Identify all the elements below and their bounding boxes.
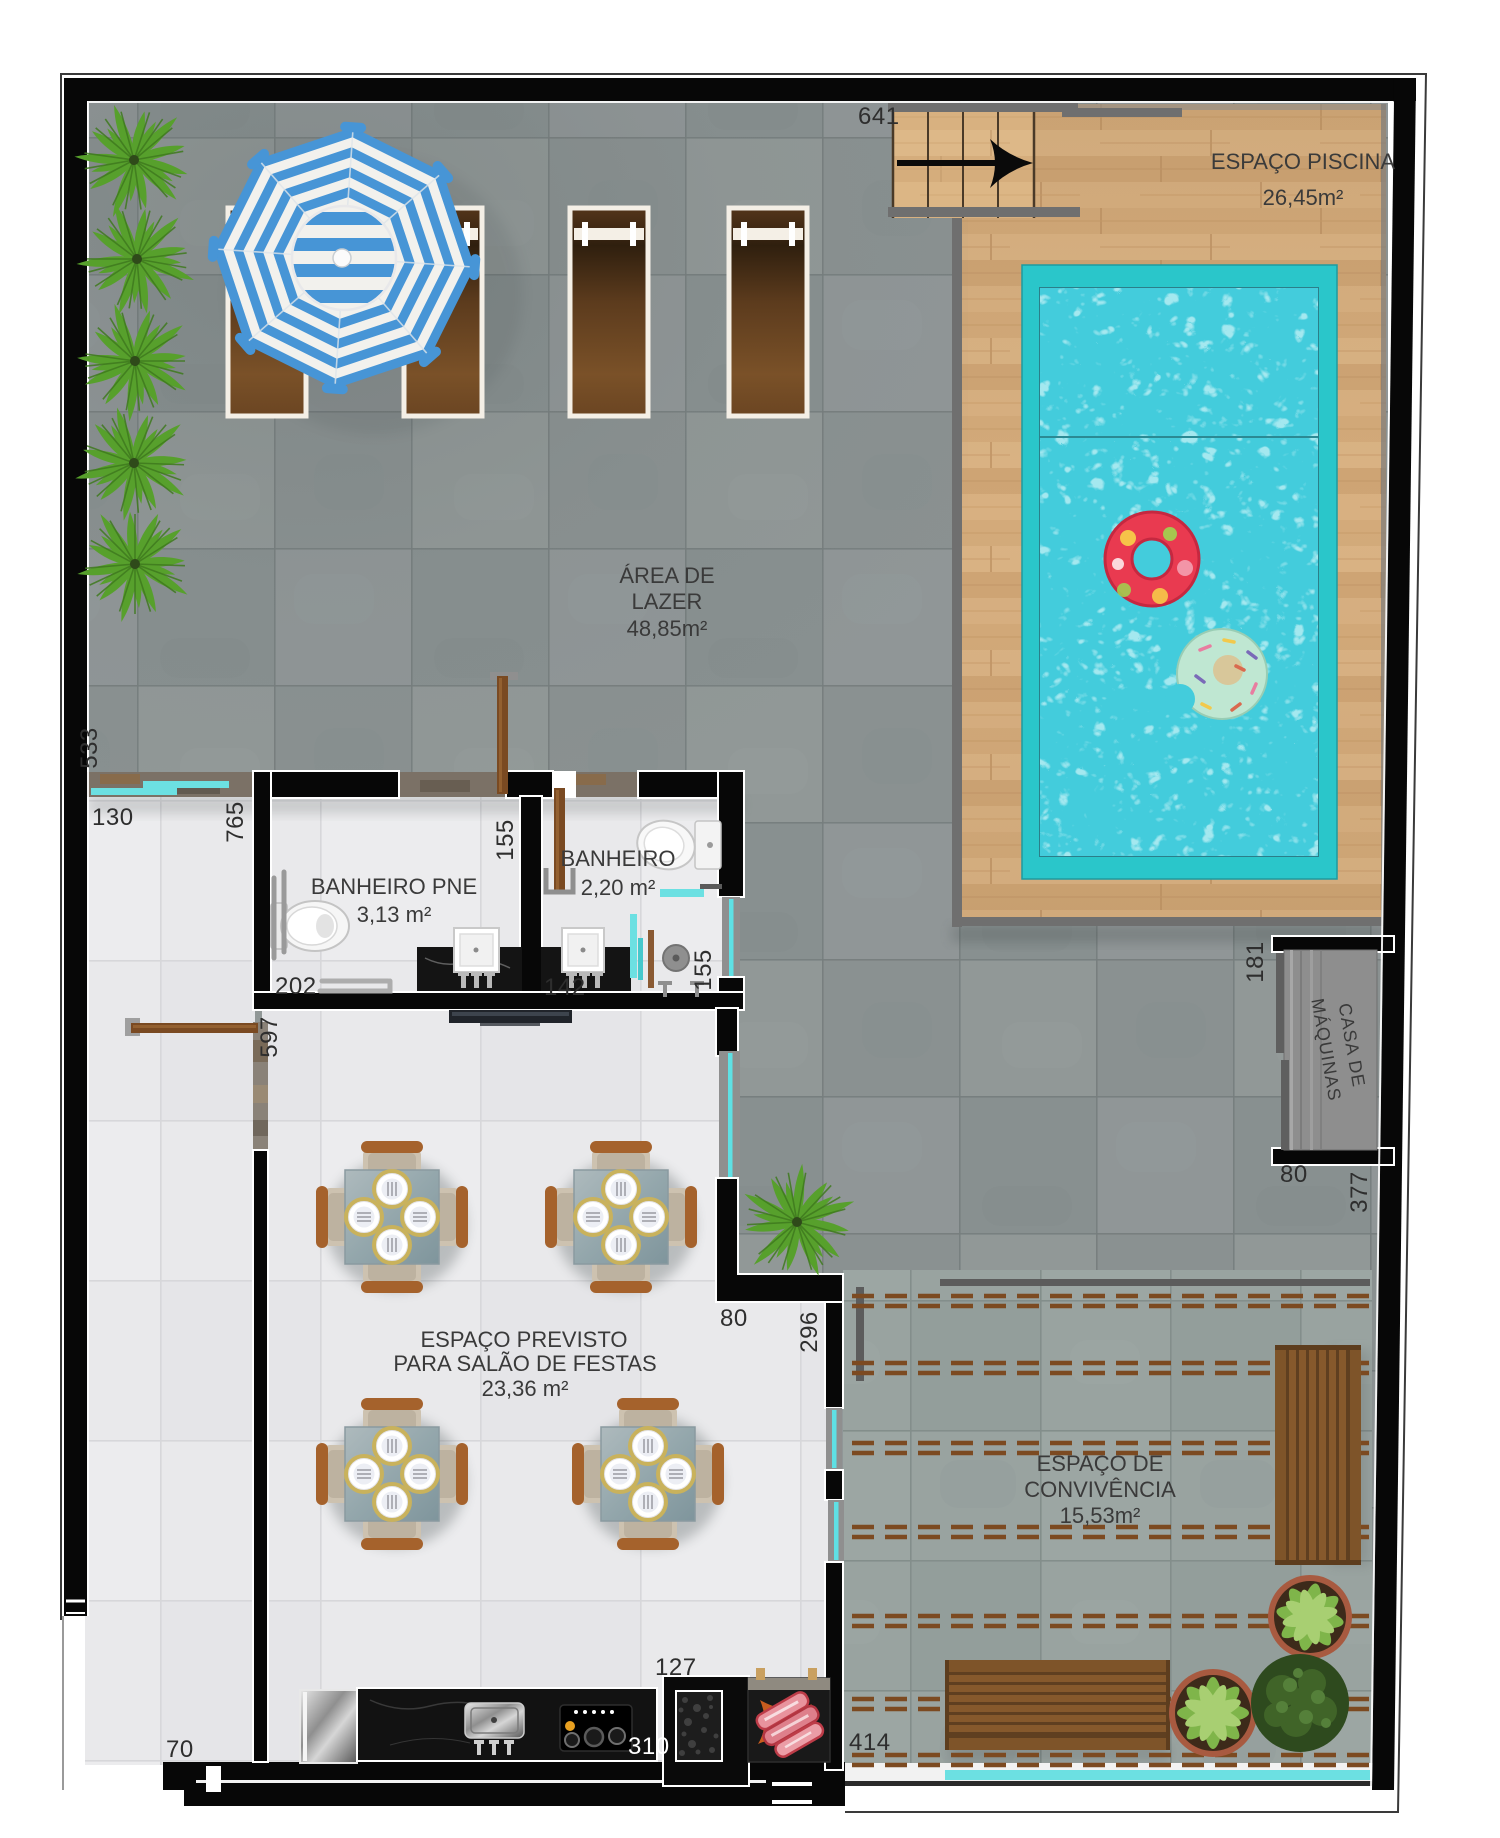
svg-text:ESPAÇO DE: ESPAÇO DE (1037, 1451, 1164, 1476)
svg-text:641: 641 (858, 103, 900, 130)
svg-text:533: 533 (76, 727, 103, 769)
svg-text:155: 155 (492, 819, 519, 861)
svg-text:26,45m²: 26,45m² (1263, 185, 1344, 210)
svg-text:15,53m²: 15,53m² (1060, 1503, 1141, 1528)
svg-text:CONVIVÊNCIA: CONVIVÊNCIA (1024, 1477, 1176, 1502)
svg-text:BANHEIRO PNE: BANHEIRO PNE (311, 874, 477, 899)
svg-text:765: 765 (222, 801, 249, 843)
svg-text:155: 155 (690, 949, 717, 991)
svg-text:80: 80 (720, 1305, 748, 1332)
svg-text:414: 414 (849, 1729, 891, 1756)
svg-text:2,20 m²: 2,20 m² (581, 875, 656, 900)
svg-text:127: 127 (655, 1654, 697, 1681)
svg-text:130: 130 (92, 804, 134, 831)
svg-text:3,13 m²: 3,13 m² (357, 902, 432, 927)
svg-text:80: 80 (1280, 1161, 1308, 1188)
svg-text:48,85m²: 48,85m² (627, 616, 708, 641)
svg-text:597: 597 (256, 1016, 283, 1058)
svg-text:202: 202 (275, 973, 317, 1000)
svg-text:ÁREA DE: ÁREA DE (619, 563, 714, 588)
svg-text:181: 181 (1242, 941, 1269, 983)
svg-text:ESPAÇO PISCINA: ESPAÇO PISCINA (1211, 149, 1396, 174)
svg-text:LAZER: LAZER (632, 589, 703, 614)
svg-text:377: 377 (1346, 1171, 1373, 1213)
svg-text:70: 70 (166, 1736, 194, 1763)
svg-text:ESPAÇO PREVISTO: ESPAÇO PREVISTO (420, 1327, 627, 1352)
svg-text:23,36 m²: 23,36 m² (482, 1376, 569, 1401)
svg-text:310: 310 (628, 1733, 670, 1760)
svg-text:296: 296 (796, 1311, 823, 1353)
svg-text:BANHEIRO: BANHEIRO (561, 846, 676, 871)
svg-text:142: 142 (544, 974, 586, 1001)
svg-text:PARA SALÃO DE FESTAS: PARA SALÃO DE FESTAS (393, 1351, 656, 1376)
